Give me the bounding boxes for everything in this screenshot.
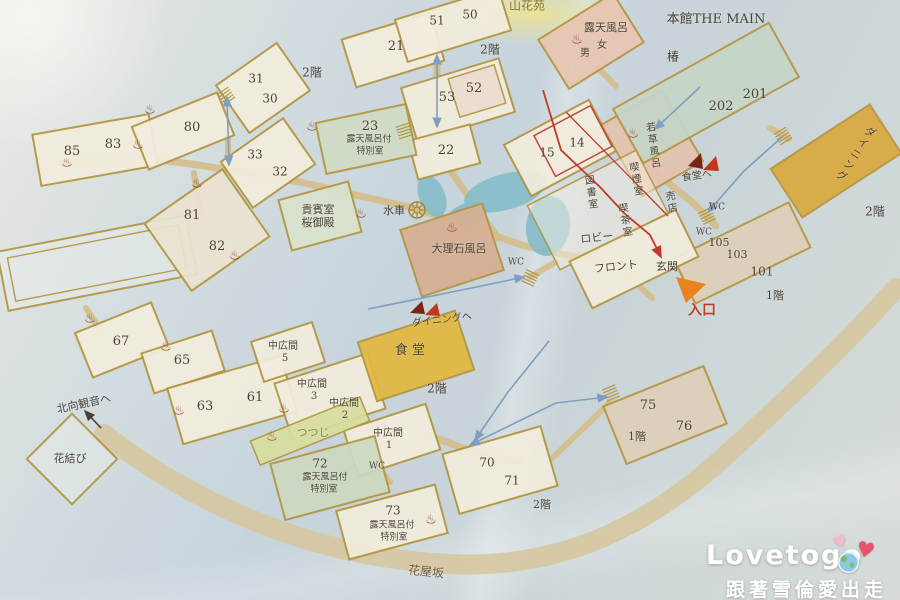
hot-spring-icon: ♨ xyxy=(160,341,172,354)
room-33: 33 xyxy=(247,149,262,162)
label-2f-annex-top: 2階 xyxy=(480,44,500,57)
map-labels-layer: 山花苑本館THE MAIN露天風呂男女椿201202ダイニング2階若草風呂食堂へ… xyxy=(0,0,900,600)
room-73: 73 xyxy=(385,505,400,518)
label-73-rotenburo-tsuki: 露天風呂付 xyxy=(369,521,414,530)
label-wc-main-upper: WC xyxy=(709,203,725,212)
label-dairiseki-buro: 大理石風呂 xyxy=(432,243,487,255)
label-honkan-the-main: 本館THE MAIN xyxy=(667,13,766,27)
label-23-rotenburo-tsuki: 露天風呂付 xyxy=(346,135,391,144)
label-sankaen: 山花苑 xyxy=(509,0,545,12)
hot-spring-icon: ♨ xyxy=(278,403,290,416)
room-15: 15 xyxy=(539,147,554,160)
label-genkan: 玄関 xyxy=(656,261,678,273)
hot-spring-icon: ♨ xyxy=(306,121,318,134)
label-1f-main: 1階 xyxy=(766,290,784,302)
label-23-tokubetsushitsu: 特別室 xyxy=(356,147,383,156)
label-hanamusubi: 花結び xyxy=(54,453,87,465)
hot-spring-icon: ♨ xyxy=(355,208,367,221)
label-2f-shokudo: 2階 xyxy=(427,383,447,396)
hot-spring-icon: ♨ xyxy=(61,157,73,170)
label-to-dining: ダイニングへ xyxy=(412,312,473,330)
label-kitamuki-kannon: 北向観音へ xyxy=(56,393,112,416)
room-22: 22 xyxy=(438,144,455,158)
label-front: フロント xyxy=(594,259,639,275)
label-nakahiroma-5: 中広間 xyxy=(268,342,298,353)
hot-spring-icon: ♨ xyxy=(84,313,96,326)
room-53: 53 xyxy=(439,91,456,105)
label-wc-marble: WC xyxy=(508,258,524,267)
label-to-shokudo: 食堂へ xyxy=(681,170,712,185)
room-202: 202 xyxy=(709,100,734,114)
room-75: 75 xyxy=(640,399,657,413)
label-rotenburo: 露天風呂 xyxy=(584,22,628,34)
label-toshoshitsu: 図書室 xyxy=(581,174,596,211)
room-105: 105 xyxy=(709,237,730,249)
label-nakahiroma-1: 中広間 xyxy=(373,429,403,440)
label-kissashitsu: 喫茶室 xyxy=(615,202,632,239)
room-61: 61 xyxy=(247,391,264,405)
hot-spring-icon: ♨ xyxy=(144,104,156,117)
label-shokudo: 食 堂 xyxy=(395,344,425,358)
room-201: 201 xyxy=(743,88,768,102)
room-82: 82 xyxy=(209,240,226,254)
resort-map-photo: 山花苑本館THE MAIN露天風呂男女椿201202ダイニング2階若草風呂食堂へ… xyxy=(0,0,900,600)
room-76: 76 xyxy=(676,420,693,434)
room-23: 23 xyxy=(362,120,379,134)
label-2f-dining: 2階 xyxy=(865,206,885,219)
hot-spring-icon: ♨ xyxy=(191,178,203,191)
label-72-rotenburo-tsuki: 露天風呂付 xyxy=(302,473,347,482)
room-101: 101 xyxy=(751,266,774,279)
label-nakahiroma-2-num: 2 xyxy=(342,411,348,422)
watermark-subtitle: 跟著雪倫愛出走 xyxy=(726,575,887,600)
label-nakahiroma-5-num: 5 xyxy=(282,354,288,365)
label-wakakusa-buro: 若草風呂 xyxy=(642,122,659,171)
label-nakahiroma-3-num: 3 xyxy=(311,392,317,403)
room-63: 63 xyxy=(197,400,214,414)
label-tsubaki: 椿 xyxy=(667,51,679,64)
label-73-tokubetsushitsu: 特別室 xyxy=(380,533,407,542)
label-dining: ダイニング xyxy=(832,124,877,185)
label-men: 男 xyxy=(580,49,590,60)
label-nakahiroma-2: 中広間 xyxy=(329,399,359,410)
room-72: 72 xyxy=(312,458,327,471)
room-14: 14 xyxy=(569,137,584,150)
room-81: 81 xyxy=(184,209,201,223)
label-kitsuenshitsu: 喫煙室 xyxy=(626,161,643,198)
room-51: 51 xyxy=(429,15,444,28)
hot-spring-icon: ♨ xyxy=(266,431,278,444)
label-baiten: 売店 xyxy=(662,190,677,215)
watermark-globe-icon xyxy=(838,552,859,573)
room-30: 30 xyxy=(262,93,277,106)
room-32: 32 xyxy=(272,166,287,179)
label-tsutsuji: つつじ xyxy=(297,427,330,439)
room-103: 103 xyxy=(727,249,748,261)
label-hanayazaka: 花屋坂 xyxy=(407,564,444,580)
hot-spring-icon: ♨ xyxy=(627,128,639,141)
label-sakura-goten: 桜御殿 xyxy=(302,217,335,229)
label-1f-75: 1階 xyxy=(628,431,646,443)
hot-spring-icon: ♨ xyxy=(229,250,241,263)
room-21: 21 xyxy=(388,40,405,54)
label-72-tokubetsushitsu: 特別室 xyxy=(310,485,337,494)
hot-spring-icon: ♨ xyxy=(446,222,458,235)
room-71: 71 xyxy=(504,475,519,488)
hot-spring-icon: ♨ xyxy=(173,405,185,418)
room-80: 80 xyxy=(184,121,201,135)
hot-spring-icon: ♨ xyxy=(425,514,437,527)
label-lobby: ロビー xyxy=(580,231,614,246)
room-65: 65 xyxy=(174,354,191,368)
room-83: 83 xyxy=(105,138,122,152)
label-nakahiroma-3: 中広間 xyxy=(297,380,327,391)
room-70: 70 xyxy=(479,457,494,470)
room-50: 50 xyxy=(462,9,477,22)
label-wc-nakahiroma: WC xyxy=(369,462,385,471)
label-suisha: 水車 xyxy=(383,205,405,217)
label-women: 女 xyxy=(597,41,607,52)
label-iriguchi: 入口 xyxy=(688,304,716,319)
label-kihinshitsu: 貴賓室 xyxy=(302,204,335,216)
room-52: 52 xyxy=(466,82,483,96)
room-67: 67 xyxy=(113,335,130,349)
room-31: 31 xyxy=(248,73,263,86)
label-nakahiroma-1-num: 1 xyxy=(386,441,392,452)
hot-spring-icon: ♨ xyxy=(132,139,144,152)
label-2f-left: 2階 xyxy=(302,67,322,80)
label-2f-70: 2階 xyxy=(533,499,551,511)
hot-spring-icon: ♨ xyxy=(571,34,583,47)
